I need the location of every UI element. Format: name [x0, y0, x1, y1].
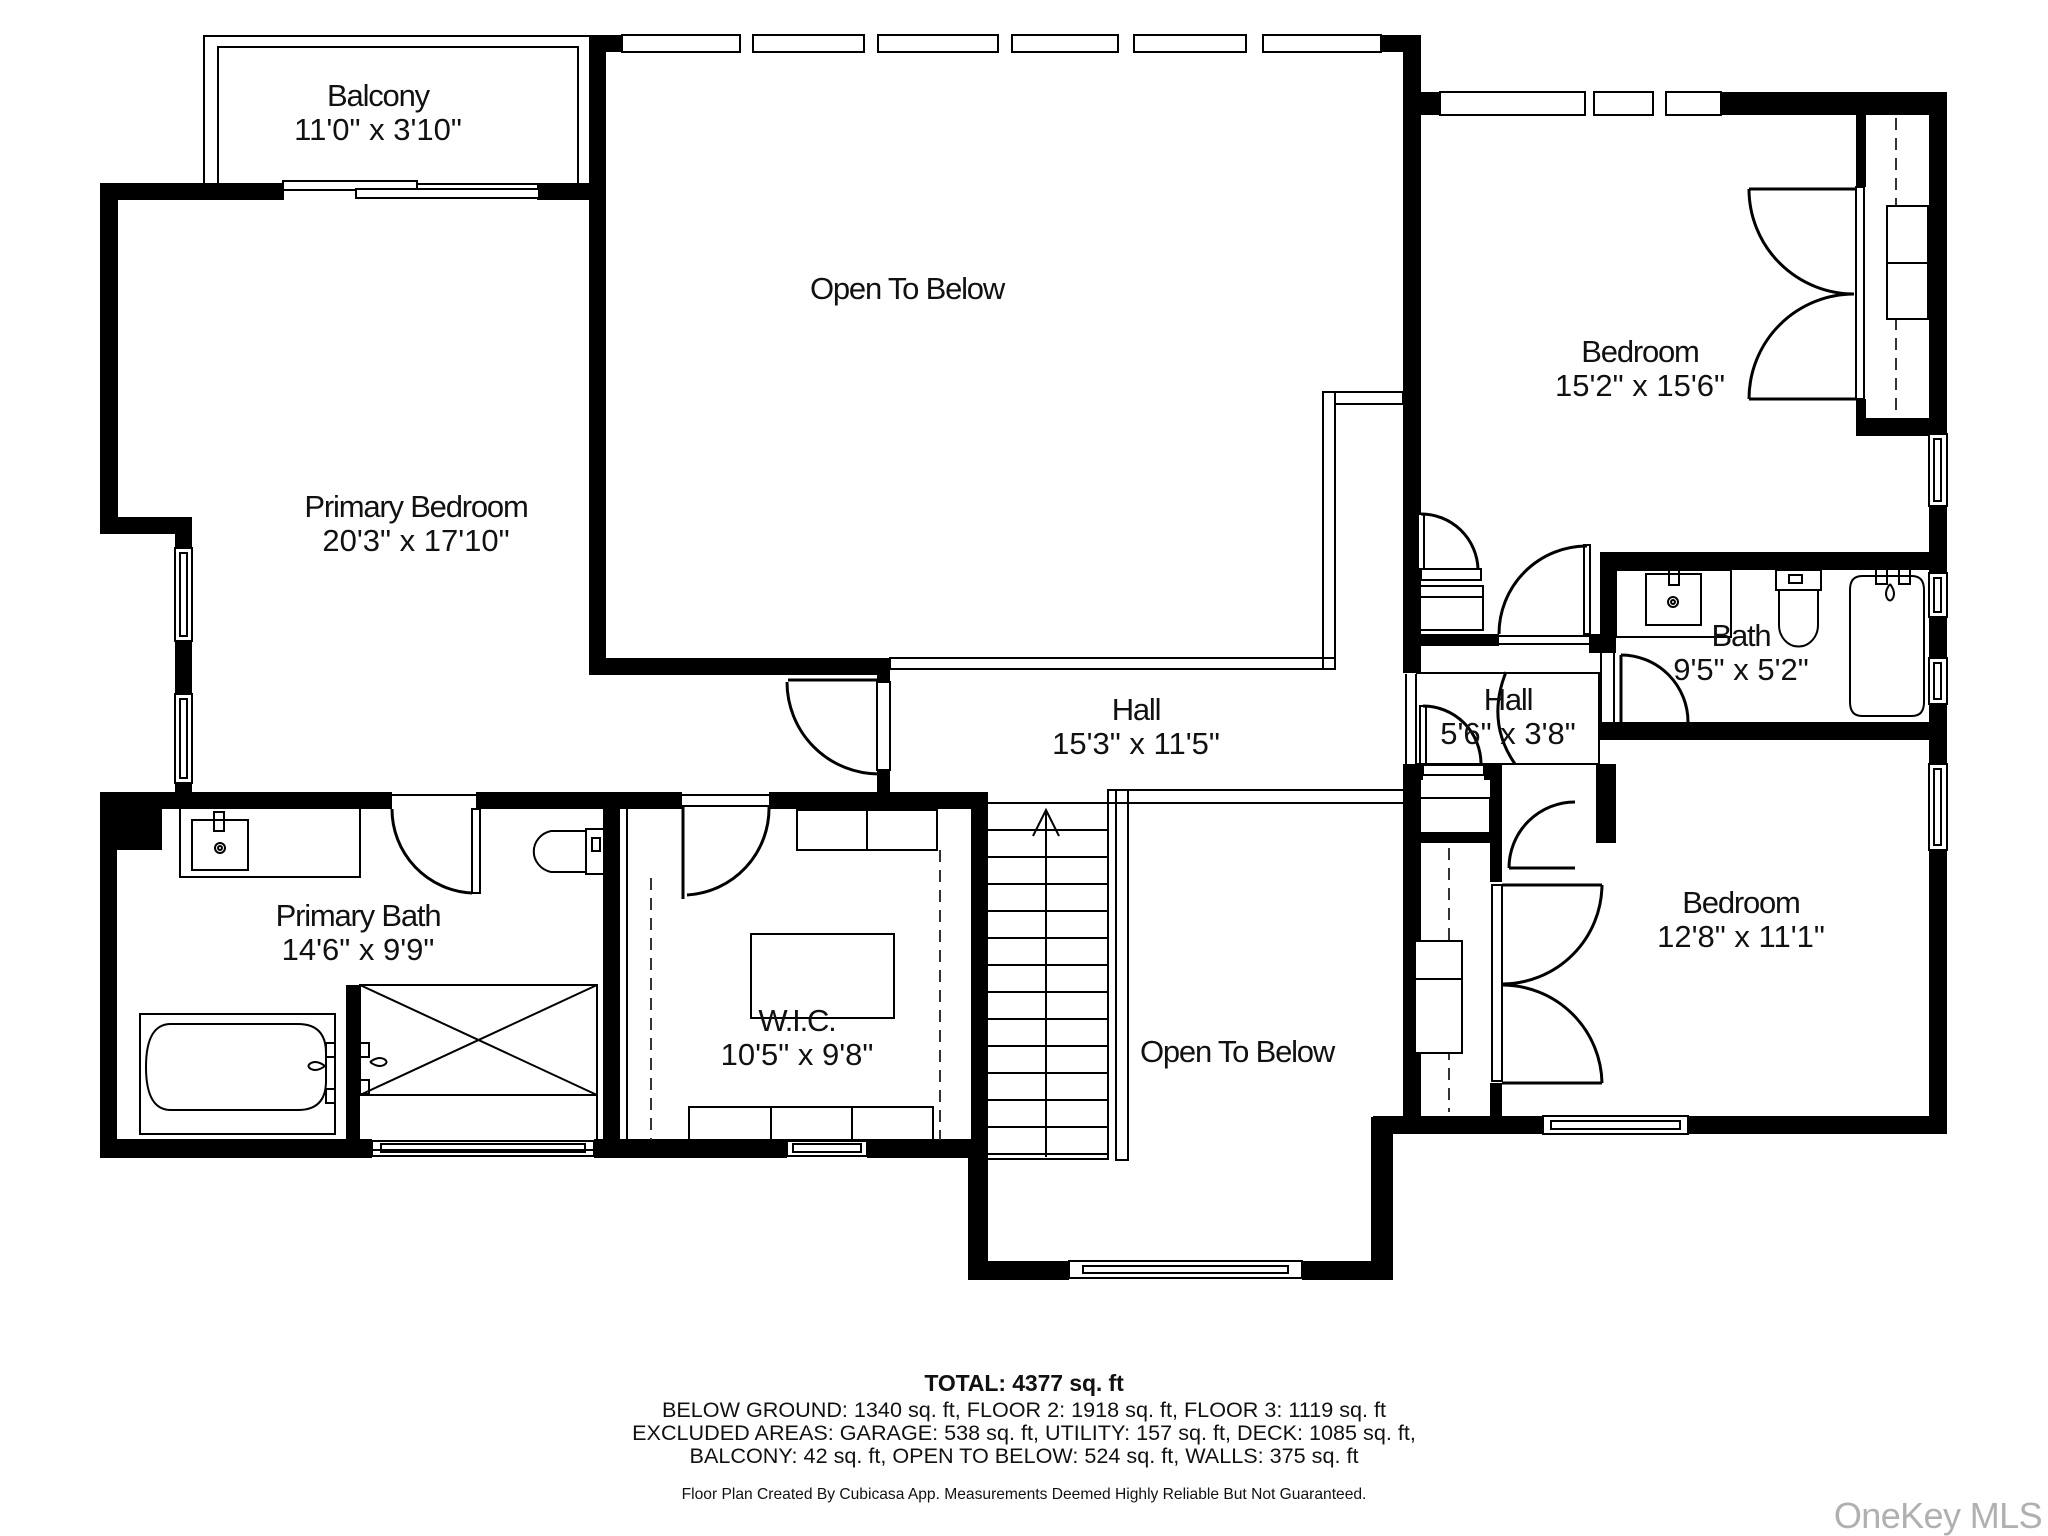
svg-text:10'5" x 9'8": 10'5" x 9'8" — [721, 1037, 874, 1072]
svg-text:Open To Below: Open To Below — [1140, 1034, 1336, 1069]
svg-text:Hall: Hall — [1484, 682, 1533, 717]
svg-text:Floor Plan Created By Cubicasa: Floor Plan Created By Cubicasa App. Meas… — [682, 1486, 1367, 1503]
svg-text:OneKey MLS: OneKey MLS — [1834, 1495, 2042, 1536]
svg-text:Primary Bedroom: Primary Bedroom — [304, 489, 527, 524]
svg-text:Bedroom: Bedroom — [1682, 885, 1799, 920]
svg-text:20'3" x 17'10": 20'3" x 17'10" — [322, 523, 509, 558]
svg-text:9'5" x 5'2": 9'5" x 5'2" — [1673, 652, 1809, 687]
svg-text:BALCONY: 42 sq. ft, OPEN TO BE: BALCONY: 42 sq. ft, OPEN TO BELOW: 524 s… — [690, 1443, 1359, 1468]
svg-text:15'2" x 15'6": 15'2" x 15'6" — [1555, 368, 1725, 403]
svg-text:W.I.C.: W.I.C. — [758, 1003, 835, 1038]
svg-text:BELOW GROUND: 1340 sq. ft, FLO: BELOW GROUND: 1340 sq. ft, FLOOR 2: 1918… — [662, 1397, 1386, 1422]
svg-text:Open To Below: Open To Below — [810, 271, 1006, 306]
svg-text:Hall: Hall — [1112, 692, 1161, 727]
svg-text:15'3" x 11'5": 15'3" x 11'5" — [1052, 726, 1220, 761]
svg-text:Balcony: Balcony — [327, 78, 431, 113]
svg-text:11'0" x 3'10": 11'0" x 3'10" — [294, 112, 462, 147]
svg-text:12'8" x 11'1": 12'8" x 11'1" — [1657, 919, 1825, 954]
svg-text:TOTAL: 4377 sq. ft: TOTAL: 4377 sq. ft — [924, 1370, 1124, 1396]
svg-text:Primary Bath: Primary Bath — [276, 898, 441, 933]
svg-text:14'6" x 9'9": 14'6" x 9'9" — [282, 932, 435, 967]
svg-text:EXCLUDED AREAS: GARAGE: 538 sq: EXCLUDED AREAS: GARAGE: 538 sq. ft, UTIL… — [632, 1420, 1416, 1445]
svg-text:Bath: Bath — [1712, 618, 1771, 653]
svg-text:5'6" x 3'8": 5'6" x 3'8" — [1440, 716, 1576, 751]
svg-text:Bedroom: Bedroom — [1581, 334, 1698, 369]
